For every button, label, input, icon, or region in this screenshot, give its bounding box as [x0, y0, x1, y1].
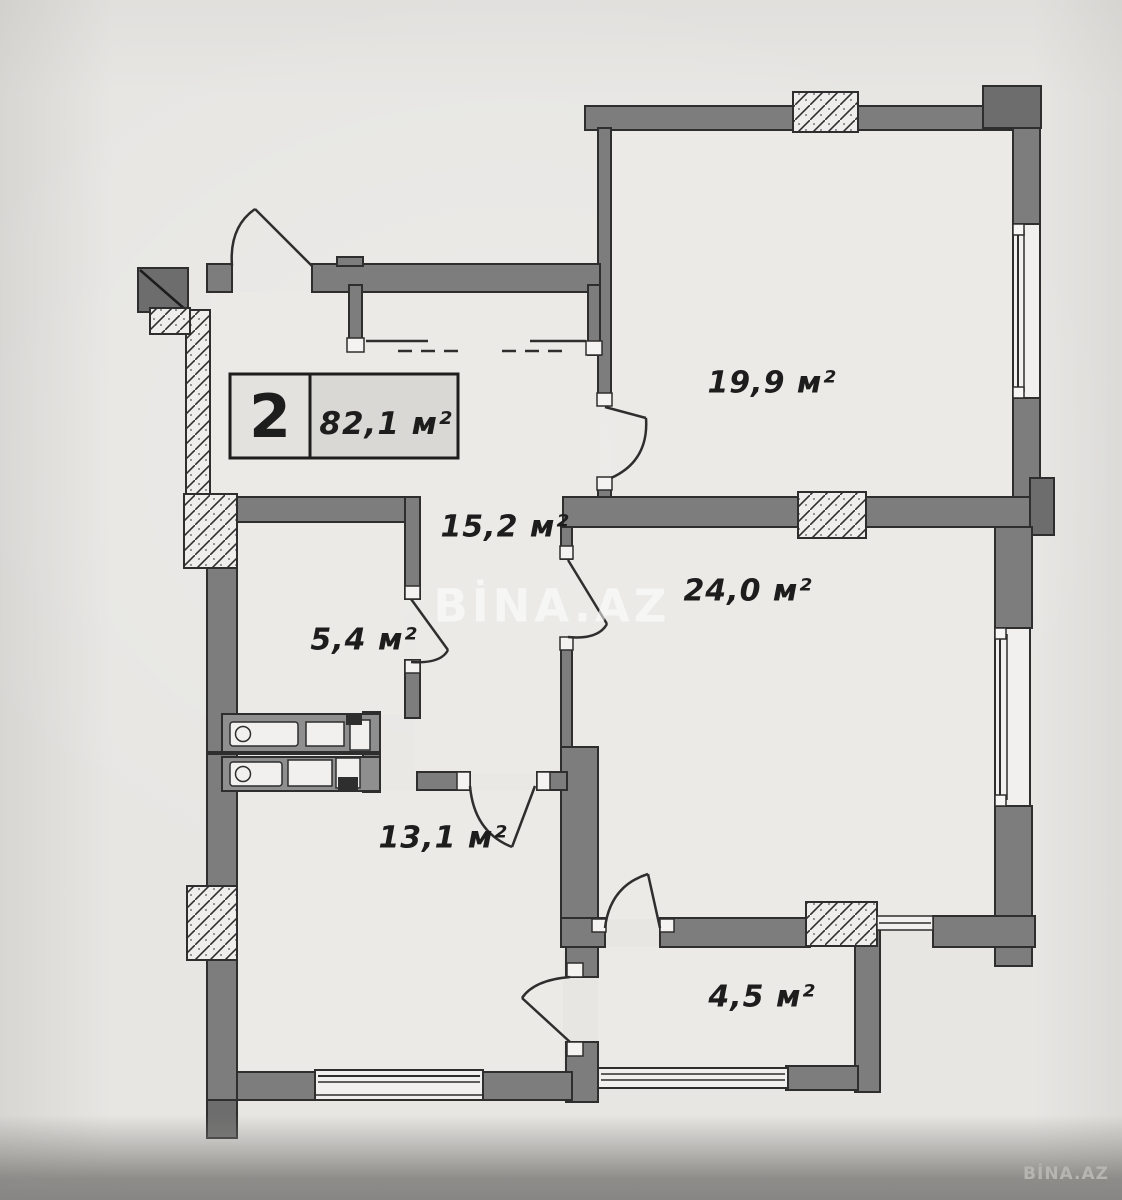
- room-fill: [611, 128, 1013, 498]
- entrance-door: [232, 209, 312, 266]
- room-label-kitchen: 13,1 м²: [378, 821, 507, 856]
- hatch-block: [187, 886, 237, 960]
- door-jamb: [567, 1042, 583, 1056]
- door-jamb: [597, 393, 612, 406]
- room-fill: [237, 522, 405, 715]
- window: [1013, 224, 1040, 398]
- door-jamb: [592, 919, 606, 932]
- shaft: [338, 777, 358, 790]
- drain: [236, 727, 251, 742]
- wall-segment: [337, 257, 363, 266]
- corner-column: [983, 86, 1041, 128]
- room-label-living: 19,9 м²: [707, 366, 836, 401]
- room-label-bathroom: 5,4 м²: [310, 623, 417, 658]
- door-jamb: [660, 919, 674, 932]
- window: [877, 916, 933, 930]
- unit-number: 2: [249, 382, 291, 452]
- wall-segment: [995, 527, 1032, 628]
- wall-notch: [347, 338, 364, 352]
- wall-segment: [227, 1072, 315, 1100]
- door-jamb: [405, 586, 420, 599]
- door-jamb: [567, 963, 583, 977]
- shaft: [346, 714, 362, 725]
- sink: [306, 722, 344, 746]
- wall-segment: [207, 497, 237, 1100]
- wall-segment: [561, 638, 572, 747]
- drain: [236, 767, 251, 782]
- hatch-block: [806, 902, 877, 946]
- door-jamb: [457, 772, 470, 790]
- hatch-block: [186, 310, 210, 498]
- unit-total-area: 82,1 м²: [319, 406, 452, 442]
- door-jamb: [597, 477, 612, 490]
- door-jamb: [560, 546, 573, 559]
- hatch-block: [184, 494, 237, 568]
- wall-segment: [483, 1072, 572, 1100]
- wall-segment: [933, 916, 1035, 947]
- watermark-corner: BİNA.AZ: [1023, 1164, 1109, 1184]
- door-jamb: [537, 772, 550, 790]
- room-label-bedroom: 24,0 м²: [683, 574, 812, 609]
- photo-shadow-band: [0, 1115, 1122, 1200]
- room-label-hallway: 15,2 м²: [440, 510, 569, 545]
- window: [995, 628, 1030, 806]
- wall-segment: [786, 1066, 858, 1090]
- corner-column: [1030, 478, 1054, 535]
- window: [598, 1068, 788, 1088]
- room-label-balcony: 4,5 м²: [708, 980, 815, 1015]
- wall-segment: [222, 497, 420, 522]
- door-jamb: [560, 637, 573, 650]
- hatch-block: [798, 492, 866, 538]
- wall-segment: [660, 918, 810, 947]
- wall-segment: [1013, 128, 1040, 224]
- wall-segment: [207, 264, 232, 292]
- window: [315, 1070, 483, 1100]
- wall-segment: [405, 497, 420, 599]
- hatch-block: [150, 308, 190, 334]
- floor-plan-photo: 2 82,1 м² 19,9 м² 15,2 м² 24,0 м² 5,4 м²…: [0, 0, 1122, 1200]
- watermark-center: BİNA.AZ: [434, 580, 671, 633]
- wall-notch: [586, 341, 602, 355]
- hatch-block: [793, 92, 858, 132]
- appliance: [288, 760, 332, 786]
- fixtures: [207, 714, 380, 791]
